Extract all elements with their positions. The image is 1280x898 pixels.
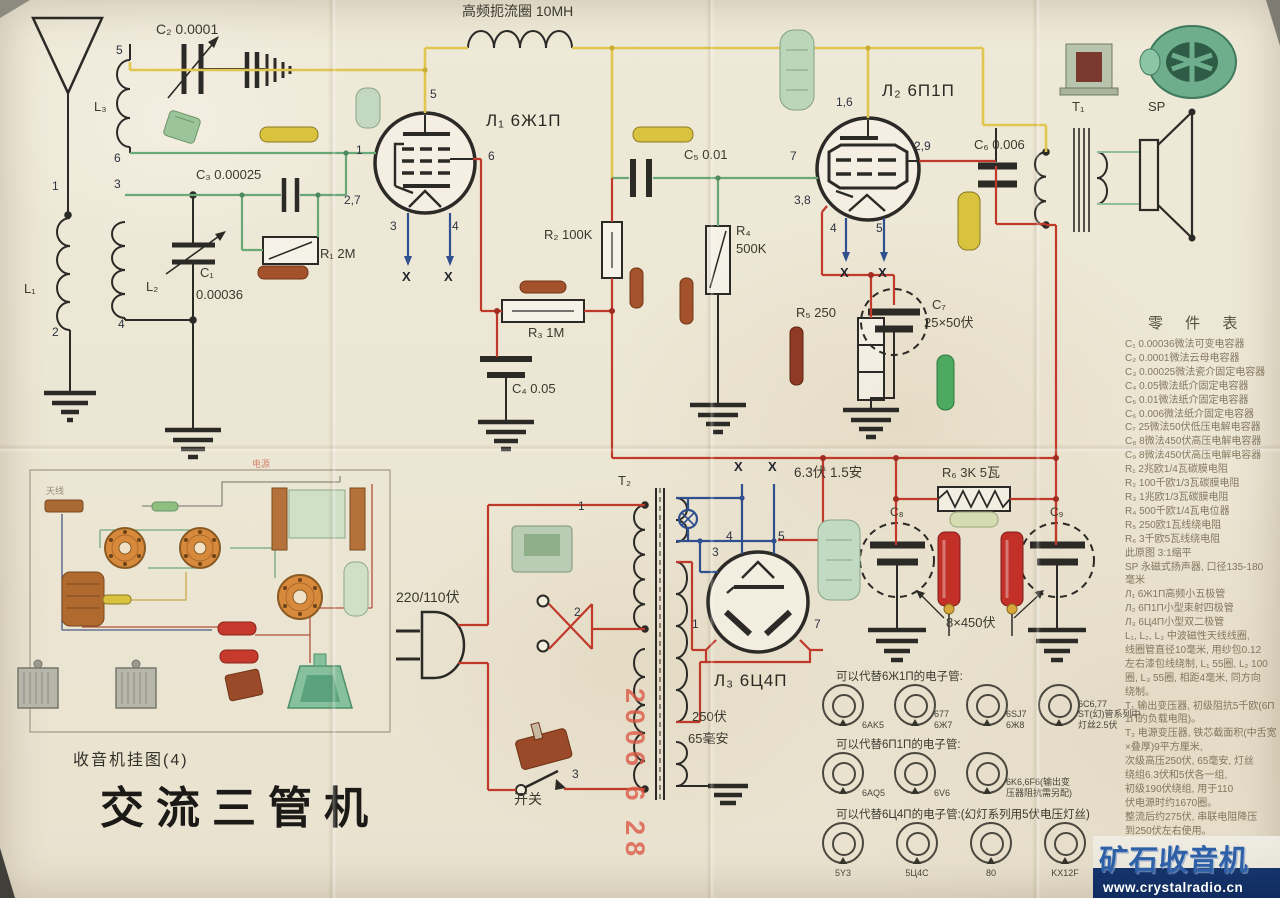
tube-v2-6p1p [817, 118, 919, 220]
c4-label: C₄ 0.05 [512, 382, 556, 395]
r2-label: R₂ 100K [544, 228, 592, 241]
pin-label: 4 [726, 530, 733, 542]
heater-voltage-label: 6.3伏 1.5安 [794, 466, 862, 480]
parts-list-line: 圈, L₃ 55圈, 相距4毫米, 同方向 [1125, 672, 1277, 686]
r4-label: R₄ [736, 224, 751, 237]
pictorial-gang-capacitors [18, 660, 156, 708]
voltage-label: 2,7 [344, 194, 361, 206]
parts-list-line: 绕制。 [1125, 686, 1277, 700]
parts-list-line: Л₁ 6Ж1П高频小五极管 [1125, 588, 1277, 602]
r5-label: R₅ 250 [796, 306, 836, 319]
resistor-r1 [263, 237, 318, 264]
parts-list-line: C₂ 0.0001微法云母电容器 [1125, 352, 1277, 366]
parts-list-line: SP 永磁式扬声器, 口径135-180 [1125, 561, 1277, 575]
cap-c4 [478, 359, 534, 449]
pin-label: 1 [52, 180, 59, 192]
substitution-row-2: 6AQ5 6V6 6K6,6F6(输出变 压器阻抗需另配) [822, 752, 1008, 794]
t1-label: T₁ [1072, 100, 1084, 113]
coil-l3 [117, 44, 130, 153]
tube-socket-icon [1044, 822, 1086, 864]
parts-list-line: 左右漆包线绕制, L₁ 55圈, L₂ 100 [1125, 658, 1277, 672]
series-title: 收音机挂图(4) [73, 746, 189, 770]
parts-list-line: Л₂ 6П1П小型束射四极管 [1125, 602, 1277, 616]
tube-substitute: 677 6Ж7 [894, 684, 936, 726]
l1-label: L₁ [24, 282, 36, 295]
resistor-r6 [938, 487, 1010, 511]
pin-label: 1 [578, 500, 585, 512]
tube-substitute: 80 [970, 822, 1012, 878]
antenna-symbol [33, 18, 102, 218]
heater-x-mark: X [840, 266, 849, 279]
watermark-url: www.crystalradio.cn [1103, 880, 1280, 895]
tube-socket-icon [966, 684, 1008, 726]
tube-substitute-label: 6K6,6F6(输出变 压器阻抗需另配) [1006, 777, 1076, 798]
pin-label: 3 [114, 178, 121, 190]
substitution-row-1: 6AK5 677 6Ж7 6SJ7 6Ж8 6C6,77 ST(幻)管系列中灯丝… [822, 684, 1080, 726]
tube3-label: Л₃ 6Ц4П [714, 672, 788, 689]
tube-socket-icon [822, 822, 864, 864]
mains-plug [396, 612, 464, 678]
tube-substitute-label: 6C6,77 ST(幻)管系列中灯丝2.5伏 [1078, 699, 1148, 730]
pin-label: 5 [778, 530, 785, 542]
c3-label: C₃ 0.00025 [196, 168, 261, 181]
t2-label: T₂ [618, 474, 631, 487]
parts-list-line: R₁ 2兆欧1/4瓦碳膜电阻 [1125, 463, 1277, 477]
date-stamp-middle: 2006 6 28 [619, 688, 650, 862]
r6-label: R₆ 3K 5瓦 [942, 466, 1000, 479]
parts-list-line: R₂ 100千欧1/3瓦碳膜电阻 [1125, 477, 1277, 491]
parts-list-line: R₃ 1兆欧1/3瓦碳膜电阻 [1125, 491, 1277, 505]
tube-v1-6zh1p [375, 113, 475, 213]
pin-label: 1 [692, 618, 699, 630]
transformer-t1 [1035, 128, 1140, 232]
pin-label: 7 [790, 150, 797, 162]
substitution-row-3: 5Y3 5Ц4C 80 KX12F [822, 822, 1086, 878]
speaker-symbol [1140, 110, 1195, 241]
parts-list-line: R₅ 250欧1瓦线绕电阻 [1125, 519, 1277, 533]
l2-label: L₂ [146, 280, 158, 293]
tube-substitute: 5Ц4C [896, 822, 938, 878]
watermark-logo: 矿石收音机 [1098, 837, 1280, 879]
pin-label: 3 [572, 768, 579, 780]
tube-substitute: 6AK5 [822, 684, 864, 726]
mains-voltage-label: 220/110伏 [396, 590, 460, 604]
heater-x-mark: X [768, 460, 777, 473]
tube-substitute-label: 80 [970, 868, 1012, 878]
tube-substitute: 5Y3 [822, 822, 864, 878]
pin-label: 5 [116, 44, 123, 56]
tube-substitute-label: 5Ц4C [896, 868, 938, 878]
parts-list-line: R₄ 500千欧1/4瓦电位器 [1125, 505, 1277, 519]
cap-rating-label: 8×450伏 [946, 616, 996, 629]
parts-list-line: 毫米 [1125, 574, 1277, 588]
page-title: 交流三管机 [100, 772, 380, 836]
tube-substitute: 6AQ5 [822, 752, 864, 794]
tube-substitute: 6SJ7 6Ж8 [966, 684, 1008, 726]
cap-c1-variable [165, 192, 226, 457]
parts-list-line: ×叠厚)9平方厘米, [1125, 741, 1277, 755]
parts-list-line: 次级高压250伏, 65毫安, 灯丝 [1125, 755, 1277, 769]
pin-label: 3 [390, 220, 397, 232]
tube-socket-icon [894, 684, 936, 726]
cap-c2-variable [168, 36, 290, 98]
tube-substitute: 6V6 [894, 752, 936, 794]
tube1-label: Л₁ 6Ж1П [486, 112, 561, 129]
parts-list-line: C₆ 0.006微法纸介固定电容器 [1125, 408, 1277, 422]
heater-x-mark: X [734, 460, 743, 473]
schematic-poster: 高频扼流圈 10MH C₂ 0.0001 L₃ 5 6 1 3 2 4 L₁ L… [0, 0, 1280, 898]
resistor-r3 [502, 300, 584, 322]
pin-label: 6 [488, 150, 495, 162]
voltage-label: 2,9 [914, 140, 931, 152]
r1-label: R₁ 2M [320, 247, 355, 260]
substitution-heading-3: 可以代替6Ц4П的电子管:(幻灯系列用5伏电压灯丝) [836, 806, 1090, 822]
tube-substitute-label: KX12F [1044, 868, 1086, 878]
c7-value: 25×50伏 [924, 316, 974, 329]
rf-choke [468, 31, 572, 48]
parts-list-line: C₇ 25微法50伏低压电解电容器 [1125, 421, 1277, 435]
pin-label: 4 [830, 222, 837, 234]
tube-socket-icon [822, 684, 864, 726]
tube2-label: Л₂ 6П1П [882, 82, 955, 99]
tube-socket-icon [896, 822, 938, 864]
watermark: 矿石收音机 www.crystalradio.cn [1093, 836, 1280, 898]
substitution-heading-2: 可以代替6П1П的电子管: [836, 736, 961, 752]
c8-label: C₈ [890, 506, 904, 518]
tube-socket-icon [970, 822, 1012, 864]
parts-list-line: 整流后约275伏, 串联电阻降压 [1125, 811, 1277, 825]
parts-list-line: C₅ 0.01微法纸介固定电容器 [1125, 394, 1277, 408]
pin-label: 5 [430, 88, 437, 100]
parts-list: C₁ 0.00036微法可变电容器C₂ 0.0001微法云母电容器C₃ 0.00… [1125, 338, 1277, 839]
pin-label: 7 [814, 618, 821, 630]
pin-label: 2 [574, 606, 581, 618]
voltage-selector [538, 596, 549, 652]
pin-label: 5 [876, 222, 883, 234]
cap-c3 [284, 178, 297, 212]
r4-value: 500K [736, 242, 766, 255]
coil-l1 [44, 218, 96, 420]
c9-label: C₉ [1050, 506, 1063, 518]
pictorial-power-label: 电源 [252, 460, 270, 469]
pin-label: 6 [114, 152, 121, 164]
pin-label: 1 [356, 144, 363, 156]
voltage-label: 1,6 [836, 96, 853, 108]
sp-label: SP [1148, 100, 1165, 113]
choke-label: 高频扼流圈 10MH [462, 4, 573, 18]
tube-socket-icon [966, 752, 1008, 794]
pictorial-tube-sockets [105, 528, 322, 619]
pin-label: 2 [52, 326, 59, 338]
tube-substitute: 6K6,6F6(输出变 压器阻抗需另配) [966, 752, 1008, 794]
c7-label: C₇ [932, 298, 946, 311]
tube-socket-icon [1038, 684, 1080, 726]
switch-label: 开关 [514, 792, 542, 806]
c1-label: C₁ [200, 266, 214, 279]
tube-substitute: 6C6,77 ST(幻)管系列中灯丝2.5伏 [1038, 684, 1080, 726]
c6-label: C₆ 0.006 [974, 138, 1025, 151]
blue-wires [404, 213, 888, 572]
parts-list-line: C₃ 0.00025微法瓷介固定电容器 [1125, 366, 1277, 380]
parts-list-heading: 零 件 表 [1148, 312, 1246, 333]
tube-socket-icon [822, 752, 864, 794]
coil-l2 [112, 222, 196, 323]
pin-label: 4 [452, 220, 459, 232]
parts-list-line: L₁, L₂, L₃ 中波磁性天线线圈, [1125, 630, 1277, 644]
paper-crease [0, 444, 1280, 453]
c2-label: C₂ 0.0001 [156, 22, 218, 36]
c1-value: 0.00036 [196, 288, 243, 301]
l3-label: L₃ [94, 100, 107, 113]
parts-list-line: R₆ 3千欧5瓦线绕电阻 [1125, 533, 1277, 547]
tube-v3-6c4p [708, 552, 808, 652]
substitution-heading-1: 可以代替6Ж1П的电子管: [836, 668, 963, 684]
resistor-r5 [843, 318, 899, 437]
pin-label: 4 [118, 318, 125, 330]
parts-list-line: 初级190伏绕组, 用于110 [1125, 783, 1277, 797]
parts-list-line: C₄ 0.05微法纸介固定电容器 [1125, 380, 1277, 394]
heater-x-mark: X [444, 270, 453, 283]
label-arrows-8x450 [916, 590, 1044, 618]
parts-list-line: 线圈管直径10毫米, 用纱包0.12 [1125, 644, 1277, 658]
tube-substitute-label: 5Y3 [822, 868, 864, 878]
voltage-label: 3,8 [794, 194, 811, 206]
heater-x-mark: X [878, 266, 887, 279]
cap-c5 [633, 159, 649, 197]
parts-list-line: 伏电源时约1670圈。 [1125, 797, 1277, 811]
pictorial-antenna-label: 天线 [46, 487, 64, 496]
r3-label: R₃ 1M [528, 326, 564, 339]
heater-x-mark: X [402, 270, 411, 283]
tube-socket-icon [894, 752, 936, 794]
parts-list-line: 此原图 3:1缩平 [1125, 547, 1277, 561]
resistor-r2 [602, 222, 622, 278]
parts-list-line: 绕组6.3伏和5伏各一组, [1125, 769, 1277, 783]
tube-substitute: KX12F [1044, 822, 1086, 878]
parts-list-line: Л₃ 6Ц4П小型双二极管 [1125, 616, 1277, 630]
parts-list-line: C₁ 0.00036微法可变电容器 [1125, 338, 1277, 352]
potentiometer-r4 [690, 226, 746, 432]
